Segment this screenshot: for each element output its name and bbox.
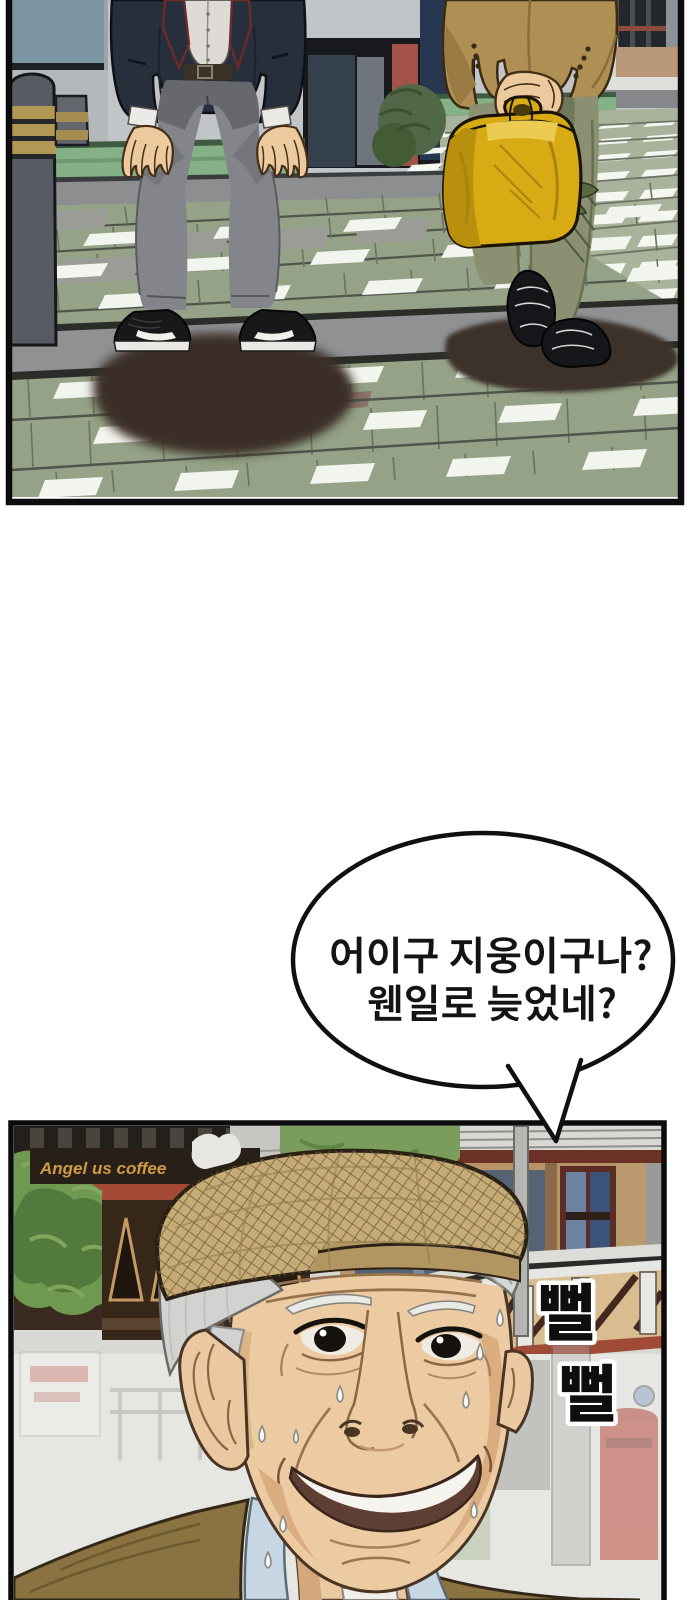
svg-text:Angel us coffee: Angel us coffee: [39, 1159, 166, 1178]
